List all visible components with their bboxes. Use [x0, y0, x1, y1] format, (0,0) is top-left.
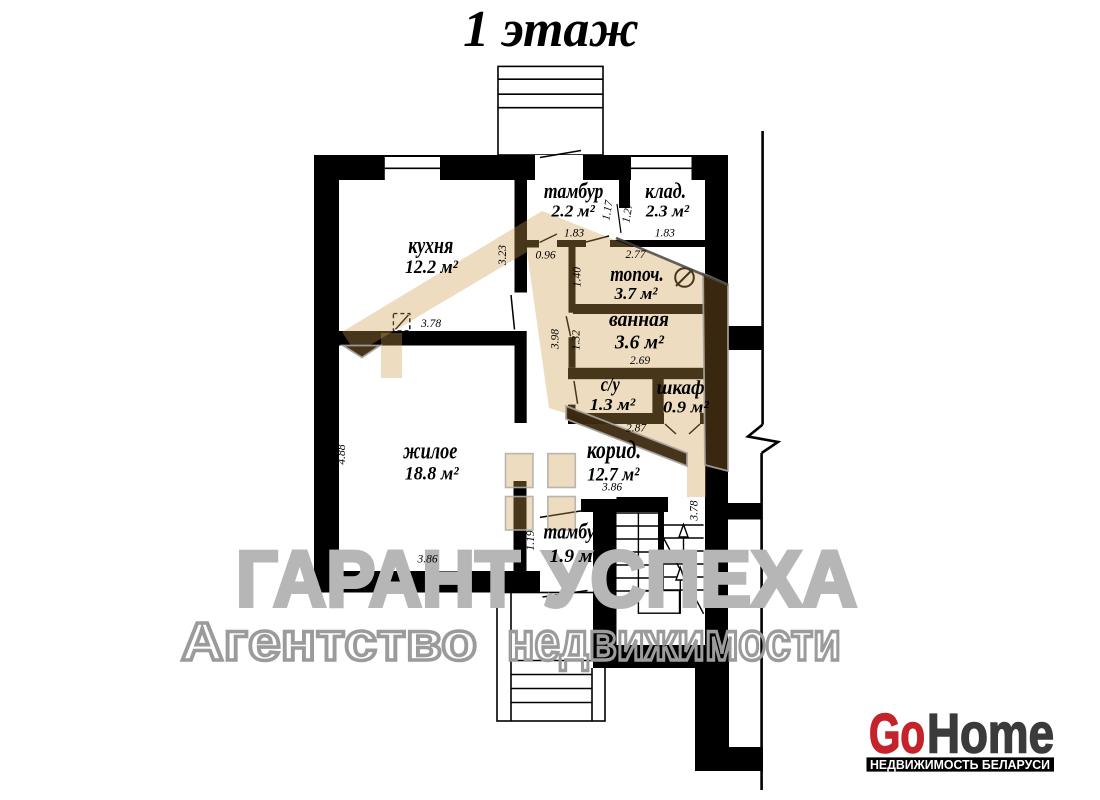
svg-text:шкаф: шкаф: [657, 377, 705, 399]
svg-text:1.40: 1.40: [572, 267, 584, 287]
svg-text:2.3 м²: 2.3 м²: [645, 201, 690, 220]
svg-text:2.77: 2.77: [625, 249, 646, 261]
svg-text:2.69: 2.69: [630, 355, 650, 367]
svg-text:2.2 м²: 2.2 м²: [550, 201, 595, 220]
svg-text:3.7 м²: 3.7 м²: [613, 284, 658, 303]
svg-text:Home: Home: [927, 702, 1054, 765]
svg-text:клад.: клад.: [645, 178, 686, 203]
svg-text:2.87: 2.87: [626, 423, 647, 435]
svg-text:1.83: 1.83: [655, 227, 675, 239]
svg-text:1.19: 1.19: [525, 530, 537, 550]
svg-text:3.23: 3.23: [497, 245, 509, 266]
svg-text:ванная: ванная: [609, 306, 669, 331]
svg-text:тамбур: тамбур: [544, 519, 604, 544]
svg-text:кухня: кухня: [408, 233, 453, 259]
svg-text:НЕДВИЖИМОСТЬ БЕЛАРУСИ: НЕДВИЖИМОСТЬ БЕЛАРУСИ: [870, 757, 1050, 772]
svg-text:ГАРАНТ: ГАРАНТ: [236, 534, 520, 623]
svg-text:с/у: с/у: [601, 374, 620, 396]
svg-text:1 этаж: 1 этаж: [463, 1, 639, 58]
svg-text:18.8 м²: 18.8 м²: [405, 464, 460, 485]
svg-text:3.78: 3.78: [420, 318, 441, 330]
svg-text:жилое: жилое: [403, 439, 458, 465]
svg-text:недвижимости: недвижимости: [507, 612, 841, 672]
svg-text:0.96: 0.96: [535, 250, 555, 262]
svg-text:Go: Go: [869, 702, 925, 765]
svg-text:12.2 м²: 12.2 м²: [405, 257, 459, 278]
svg-text:3.78: 3.78: [689, 500, 701, 521]
svg-text:1.3 м²: 1.3 м²: [590, 395, 637, 414]
svg-text:3.98: 3.98: [550, 329, 562, 350]
svg-text:1.32: 1.32: [571, 330, 583, 350]
svg-text:0.9 м²: 0.9 м²: [663, 398, 710, 417]
svg-text:1.83: 1.83: [564, 227, 584, 239]
svg-text:3.86: 3.86: [416, 554, 437, 566]
svg-text:топоч.: топоч.: [610, 261, 664, 286]
svg-text:3.6 м²: 3.6 м²: [614, 333, 665, 354]
svg-text:4.88: 4.88: [336, 444, 348, 464]
svg-text:тамбур: тамбур: [544, 178, 604, 203]
svg-text:1.9 м²: 1.9 м²: [550, 546, 600, 567]
svg-text:корид.: корид.: [587, 437, 641, 464]
svg-text:Агентство: Агентство: [181, 612, 477, 672]
svg-text:3.86: 3.86: [601, 482, 622, 494]
